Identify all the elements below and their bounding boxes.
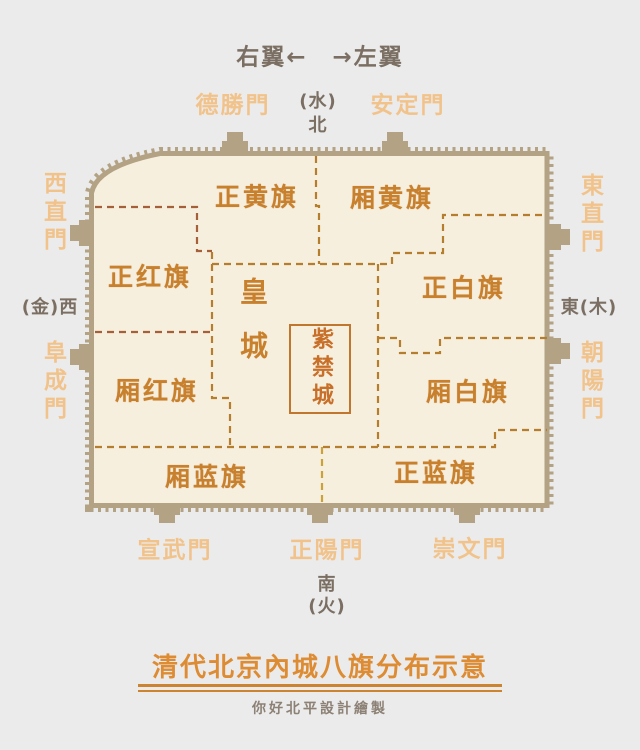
region-forbidden-city: 紫禁城 [309, 327, 331, 411]
gate-chaoyangmen: 朝陽門 [578, 340, 601, 424]
region-bordered-yellow-banner: 厢黄旗 [350, 186, 434, 211]
gate-zhengyangmen: 正陽門 [290, 540, 365, 563]
compass-south: 南 [318, 576, 337, 594]
region-bordered-blue-banner: 厢蓝旗 [165, 465, 249, 490]
title-underline [138, 684, 502, 692]
gate-dongzhimen: 東直門 [578, 173, 601, 257]
region-plain-blue-banner: 正蓝旗 [394, 461, 478, 486]
design-credit: 你好北平設計繪製 [252, 702, 388, 716]
region-plain-white-banner: 正白旗 [422, 276, 506, 301]
gate-deshengmen: 德勝門 [196, 95, 271, 118]
region-bordered-white-banner: 厢白旗 [426, 380, 510, 405]
gate-andingmen: 安定門 [371, 95, 446, 118]
map-title: 清代北京內城八旗分布示意 [152, 655, 488, 681]
gate-chongwenmen: 崇文門 [433, 539, 508, 562]
region-plain-yellow-banner: 正黄旗 [215, 185, 299, 210]
compass-south-element: (火) [308, 598, 345, 616]
forbidden-city-box: 紫禁城 [289, 324, 351, 414]
region-plain-red-banner: 正红旗 [108, 265, 192, 290]
wings-header: 右翼← →左翼 [236, 47, 404, 70]
compass-west: (金)西 [22, 299, 78, 317]
gate-fuchengmen: 阜成門 [41, 340, 64, 424]
compass-north-element: (水) [299, 93, 336, 111]
infographic-stage: 右翼← →左翼 (水) 北 (金)西 東(木) 南 (火) 德勝門 安定門 西直… [0, 0, 640, 750]
gate-xuanwumen: 宣武門 [138, 540, 213, 563]
region-imperial-city: 皇城 [238, 277, 266, 385]
compass-north: 北 [309, 117, 328, 135]
compass-east: 東(木) [561, 299, 617, 317]
region-bordered-red-banner: 厢红旗 [115, 379, 199, 404]
gate-xizhimen: 西直門 [41, 171, 64, 255]
